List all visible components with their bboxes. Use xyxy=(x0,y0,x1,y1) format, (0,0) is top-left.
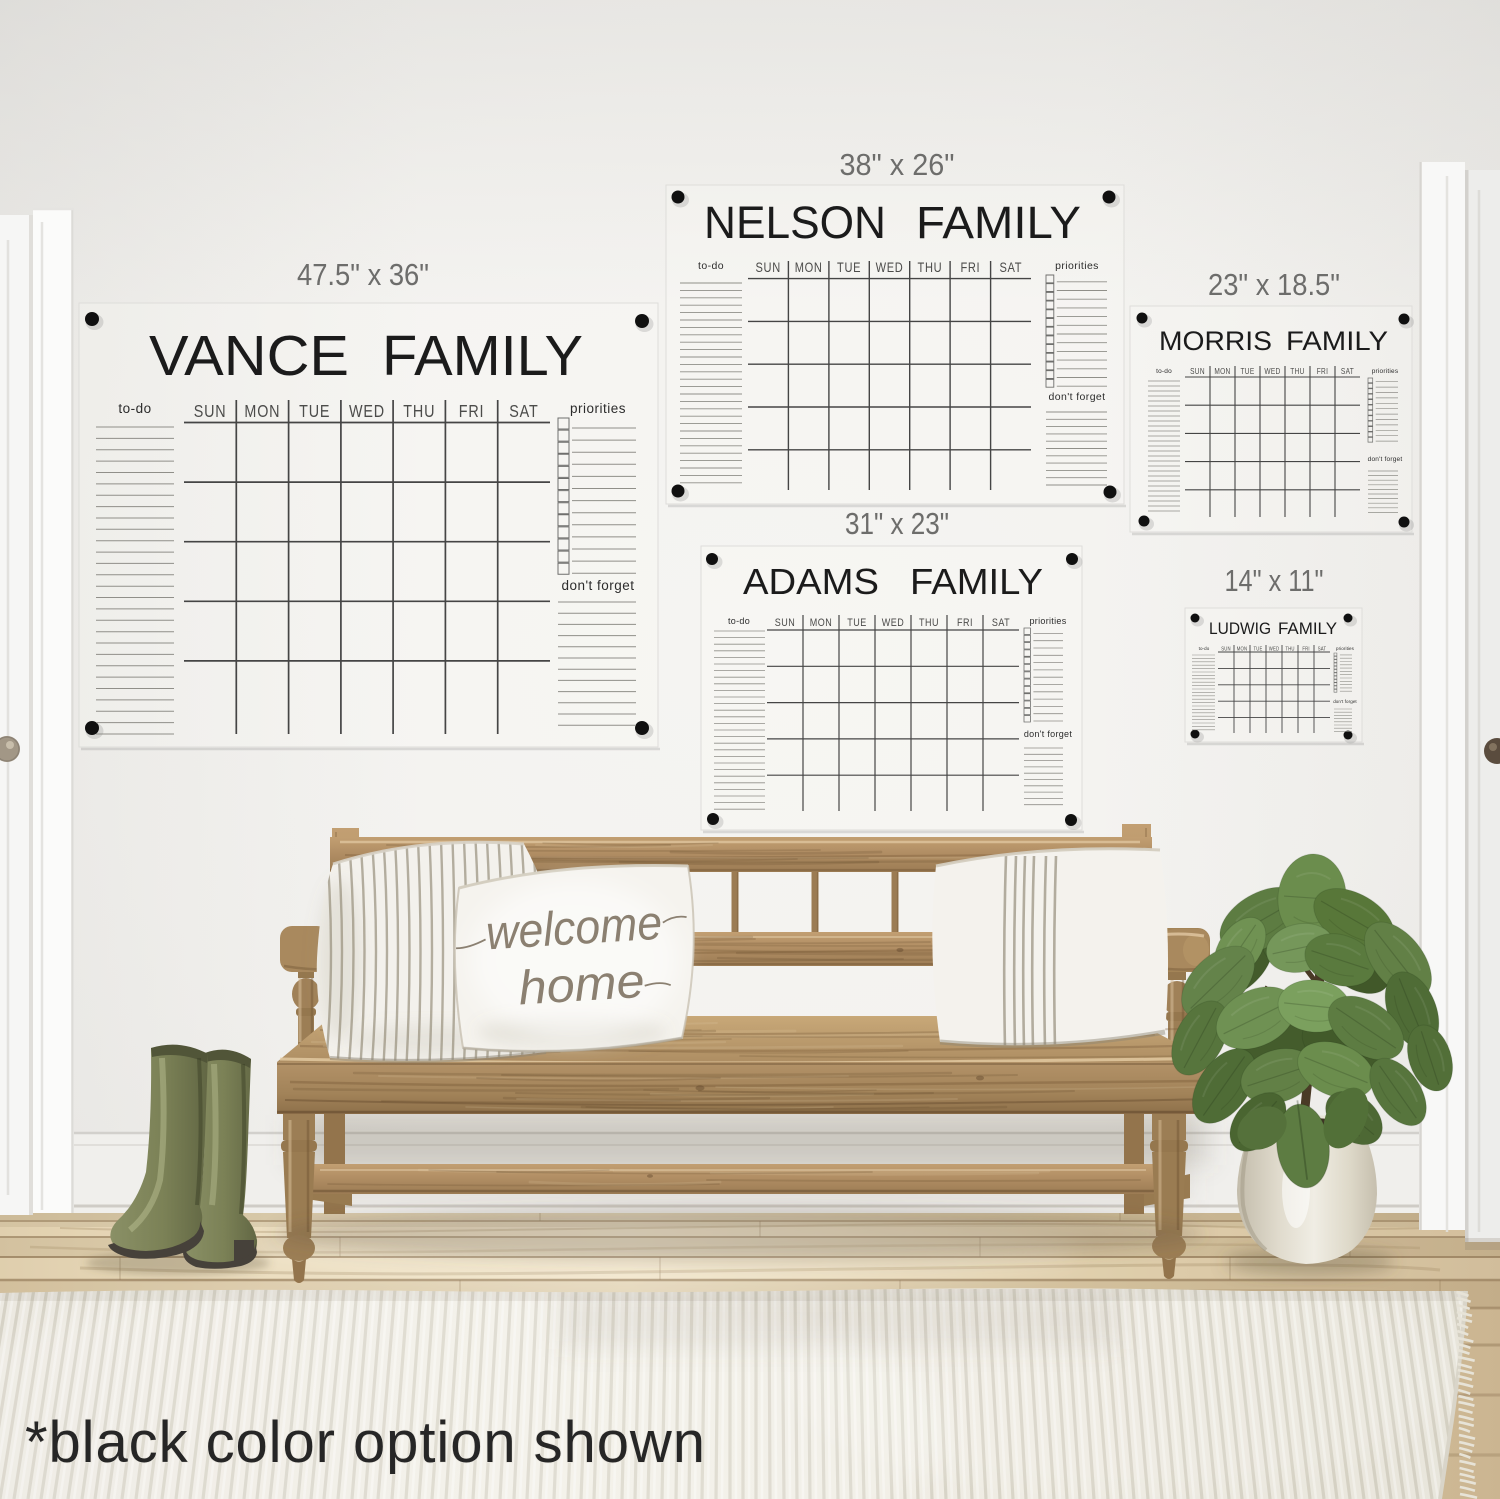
svg-text:SAT: SAT xyxy=(1341,366,1354,376)
svg-text:priorities: priorities xyxy=(1055,260,1099,272)
svg-text:don't forget: don't forget xyxy=(561,578,634,593)
svg-text:THU: THU xyxy=(919,617,939,629)
svg-text:SAT: SAT xyxy=(509,403,538,422)
svg-text:don't forget: don't forget xyxy=(1024,729,1073,739)
svg-text:FAMILY: FAMILY xyxy=(1286,326,1388,356)
svg-text:THU: THU xyxy=(918,260,943,275)
svg-text:FRI: FRI xyxy=(459,403,485,422)
svg-text:priorities: priorities xyxy=(1372,368,1399,375)
svg-text:FAMILY: FAMILY xyxy=(916,197,1081,248)
svg-text:23" x 18.5": 23" x 18.5" xyxy=(1208,267,1340,302)
svg-text:SAT: SAT xyxy=(999,260,1022,275)
svg-text:to-do: to-do xyxy=(728,616,750,626)
svg-text:FRI: FRI xyxy=(961,260,981,275)
svg-text:FAMILY: FAMILY xyxy=(1278,619,1337,638)
svg-text:FRI: FRI xyxy=(1317,366,1329,376)
svg-text:priorities: priorities xyxy=(570,401,626,416)
svg-text:SUN: SUN xyxy=(756,260,781,275)
svg-text:THU: THU xyxy=(403,403,435,422)
svg-text:MON: MON xyxy=(810,617,833,629)
svg-text:to-do: to-do xyxy=(698,260,724,272)
svg-text:38" x 26": 38" x 26" xyxy=(840,147,955,182)
svg-text:don't forget: don't forget xyxy=(1333,699,1357,704)
svg-text:WED: WED xyxy=(876,260,904,275)
svg-text:welcome: welcome xyxy=(485,897,664,961)
svg-text:TUE: TUE xyxy=(1240,366,1254,376)
svg-text:don't forget: don't forget xyxy=(1048,391,1105,403)
svg-text:to-do: to-do xyxy=(1199,646,1210,651)
svg-text:priorities: priorities xyxy=(1029,616,1066,626)
svg-text:14" x 11": 14" x 11" xyxy=(1225,563,1324,598)
svg-text:to-do: to-do xyxy=(1156,368,1172,375)
svg-text:FAMILY: FAMILY xyxy=(382,324,583,388)
svg-text:LUDWIG: LUDWIG xyxy=(1209,619,1271,638)
svg-text:MON: MON xyxy=(795,260,823,275)
svg-text:SUN: SUN xyxy=(1190,366,1205,376)
svg-text:TUE: TUE xyxy=(847,617,867,629)
svg-text:47.5" x 36": 47.5" x 36" xyxy=(297,257,429,292)
svg-text:FAMILY: FAMILY xyxy=(910,561,1043,602)
svg-text:WED: WED xyxy=(349,403,385,422)
svg-text:to-do: to-do xyxy=(118,401,151,416)
svg-text:home: home xyxy=(517,955,646,1016)
svg-text:WED: WED xyxy=(1264,366,1280,376)
svg-text:TUE: TUE xyxy=(837,260,861,275)
svg-text:FRI: FRI xyxy=(957,617,973,629)
svg-text:SUN: SUN xyxy=(775,617,795,629)
svg-text:ADAMS: ADAMS xyxy=(743,561,879,602)
svg-text:priorities: priorities xyxy=(1336,646,1355,651)
svg-text:TUE: TUE xyxy=(299,403,330,422)
svg-text:THU: THU xyxy=(1290,366,1304,376)
svg-text:MON: MON xyxy=(244,403,280,422)
svg-text:don't forget: don't forget xyxy=(1368,456,1403,463)
svg-text:SUN: SUN xyxy=(194,403,227,422)
svg-text:NELSON: NELSON xyxy=(704,197,886,248)
svg-text:31" x 23": 31" x 23" xyxy=(845,506,949,541)
svg-text:MON: MON xyxy=(1214,366,1230,376)
svg-text:VANCE: VANCE xyxy=(149,324,349,388)
svg-text:MORRIS: MORRIS xyxy=(1159,326,1272,356)
svg-text:WED: WED xyxy=(882,617,905,629)
svg-text:*black color option shown: *black color option shown xyxy=(25,1410,705,1475)
svg-text:SAT: SAT xyxy=(992,617,1010,629)
